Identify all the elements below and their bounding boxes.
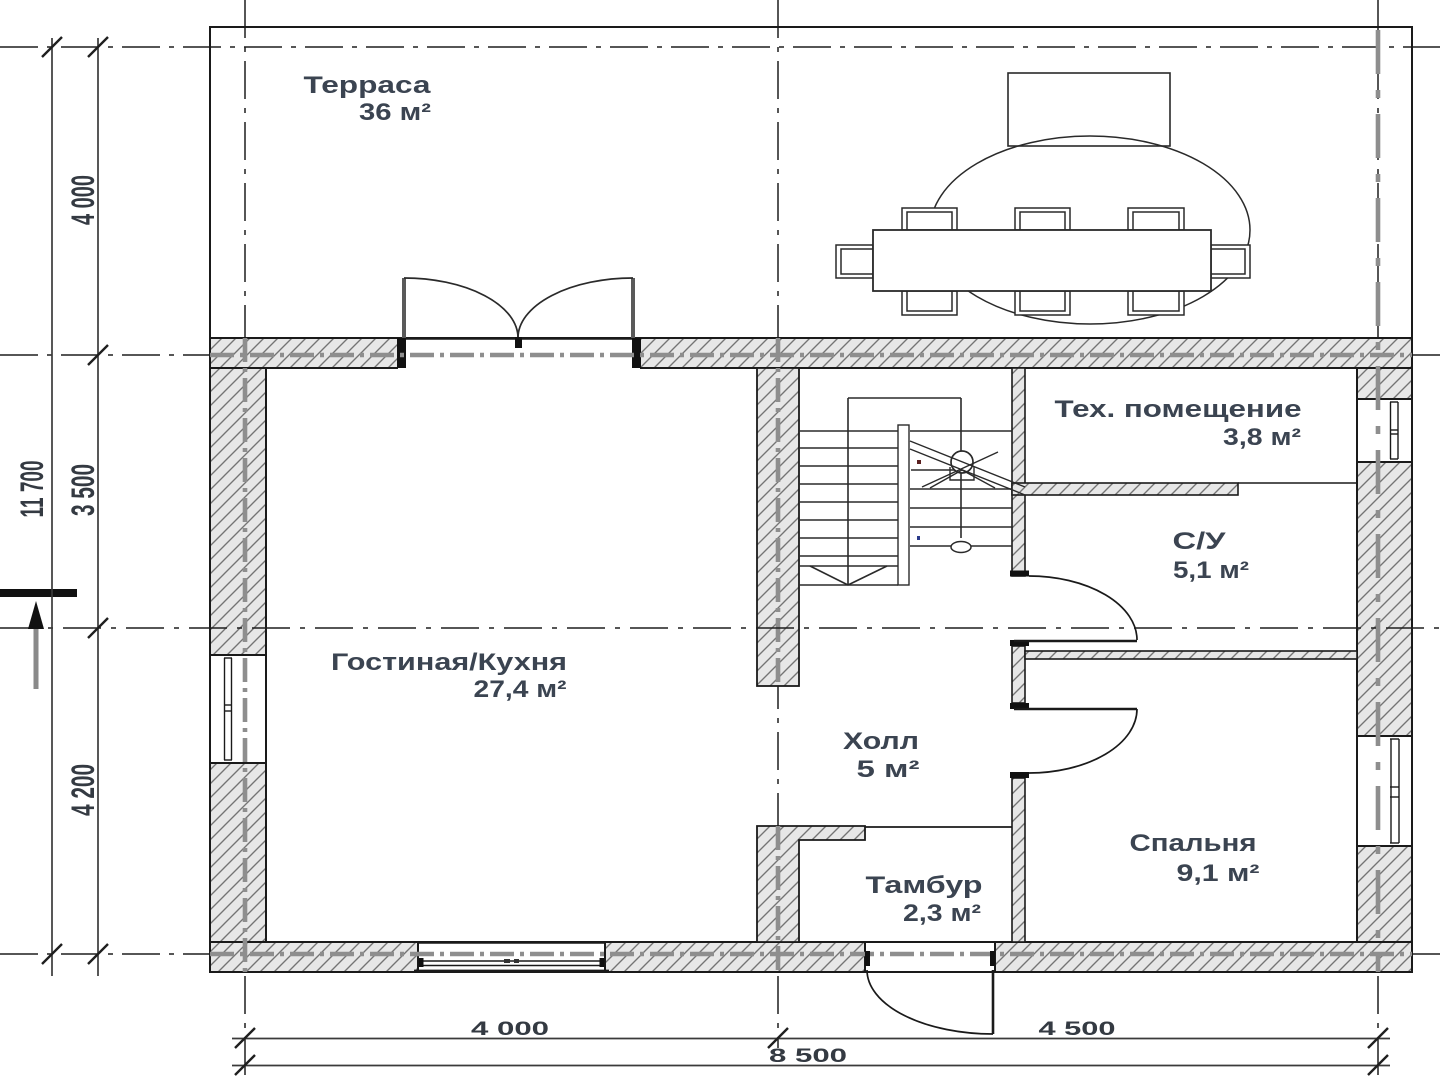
svg-text:Тех. помещение: Тех. помещение bbox=[1055, 396, 1302, 423]
svg-text:Тамбур: Тамбур bbox=[866, 872, 983, 899]
svg-text:11 700: 11 700 bbox=[14, 461, 50, 518]
svg-text:4 000: 4 000 bbox=[65, 175, 101, 225]
svg-text:Гостиная/Кухня: Гостиная/Кухня bbox=[331, 649, 567, 676]
svg-text:Спальня: Спальня bbox=[1130, 830, 1257, 857]
svg-text:4 500: 4 500 bbox=[1039, 1019, 1116, 1040]
svg-text:3 500: 3 500 bbox=[65, 464, 101, 516]
svg-text:5,1 м²: 5,1 м² bbox=[1173, 557, 1249, 584]
svg-text:36 м²: 36 м² bbox=[359, 99, 431, 126]
svg-text:9,1 м²: 9,1 м² bbox=[1177, 860, 1260, 887]
svg-text:С/У: С/У bbox=[1173, 528, 1227, 555]
svg-text:3,8 м²: 3,8 м² bbox=[1223, 424, 1301, 451]
svg-text:Терраса: Терраса bbox=[304, 72, 432, 99]
svg-text:27,4 м²: 27,4 м² bbox=[474, 676, 567, 703]
svg-text:Холл: Холл bbox=[843, 728, 919, 755]
svg-text:4 200: 4 200 bbox=[65, 764, 101, 816]
svg-text:4 000: 4 000 bbox=[471, 1019, 549, 1040]
svg-text:2,3 м²: 2,3 м² bbox=[903, 900, 981, 927]
svg-text:5 м²: 5 м² bbox=[857, 756, 920, 783]
svg-text:8 500: 8 500 bbox=[769, 1046, 847, 1067]
